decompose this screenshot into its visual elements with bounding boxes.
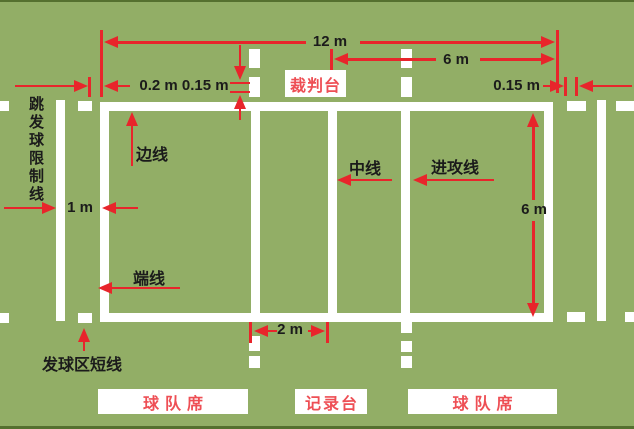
team-bench-right-box: 球队席 [408, 389, 557, 414]
end-line-label: 端线 [133, 265, 165, 289]
side-line-label: 边线 [136, 141, 168, 165]
arrowhead-left [98, 282, 112, 294]
dash-mark [401, 341, 412, 352]
attack-line-right [401, 102, 410, 322]
dim-line [239, 45, 241, 67]
team-bench-left-label: 球队席 [143, 390, 209, 414]
dim-tick [575, 77, 578, 96]
dash-mark [249, 49, 260, 68]
dim-line [480, 58, 542, 61]
arrowhead-right [311, 325, 325, 337]
label-leader-line [111, 287, 180, 289]
dash-mark [249, 77, 260, 97]
attack-line-left [251, 102, 260, 322]
dim-tick [88, 77, 91, 97]
dim-12m-label: 12 m [300, 33, 360, 50]
dim-1m-label: 1 m [62, 199, 98, 216]
side-line-bottom [100, 313, 553, 322]
arrowhead-right [550, 80, 564, 92]
label-leader-line [350, 179, 392, 181]
dim-line [532, 126, 535, 200]
attack-line-label: 进攻线 [431, 154, 479, 178]
dim-tick [249, 322, 252, 343]
dash-mark [625, 312, 634, 322]
arrowhead-right [74, 80, 88, 92]
dim-tick [100, 30, 103, 97]
serve-zone-short-line-label: 发球区短线 [42, 351, 122, 375]
dim-2m-label: 2 m [272, 321, 308, 338]
referee-stand-box: 裁判台 [285, 70, 346, 97]
dash-mark [401, 77, 412, 97]
jump-serve-restriction-line-label: 跳发球限制线 [24, 96, 46, 228]
dim-gap-labels: 0.2 m 0.15 m [131, 77, 237, 94]
dim-tick [330, 49, 333, 72]
dash-mark [567, 312, 585, 322]
center-line [328, 102, 337, 322]
dash-mark [78, 313, 92, 323]
arrowhead-left [102, 202, 116, 214]
dim-6m-width-label: 6 m [514, 201, 554, 218]
dash-mark [0, 101, 9, 111]
team-bench-left-box: 球队席 [98, 389, 248, 414]
dash-mark [567, 101, 586, 111]
dim-line [592, 85, 632, 87]
arrowhead-right [541, 36, 555, 48]
arrowhead-left [254, 325, 268, 337]
arrowhead-right [541, 53, 555, 65]
dim-line [116, 207, 138, 209]
dash-mark [249, 356, 260, 368]
center-line-label: 中线 [349, 155, 381, 179]
dim-015m-right-label: 0.15 m [470, 77, 540, 94]
dash-mark [401, 322, 412, 333]
dim-tick [564, 77, 567, 96]
dim-line [239, 108, 241, 120]
arrowhead-left [579, 80, 593, 92]
dim-line [117, 85, 130, 87]
dash-mark [78, 101, 92, 111]
arrowhead-left [104, 80, 118, 92]
dim-line [360, 41, 542, 44]
dash-mark [616, 101, 634, 111]
arrowhead-down [234, 66, 246, 80]
dim-015m-label: 0.15 m [182, 77, 229, 94]
arrowhead-left [413, 174, 427, 186]
dash-mark [0, 313, 9, 323]
volleyball-court-diagram: 12 m 6 m 0.2 m 0.15 m 0.15 m 1 m 2 m 6 m [0, 0, 634, 429]
side-line-top [100, 102, 553, 111]
dim-tick-horizontal [230, 82, 250, 84]
dim-02m-label: 0.2 m [139, 77, 177, 94]
referee-stand-label: 裁判台 [290, 72, 341, 96]
label-leader-line [83, 341, 85, 351]
scorer-table-box: 记录台 [295, 389, 367, 414]
arrowhead-down [527, 303, 539, 317]
dim-tick-horizontal [230, 91, 250, 93]
dim-line [116, 41, 306, 44]
arrowhead-up [78, 328, 90, 342]
dim-tick [326, 322, 329, 343]
jump-serve-restriction-line-right [597, 100, 606, 321]
arrowhead-up [126, 112, 138, 126]
arrowhead-up [234, 95, 246, 109]
label-leader-line [131, 125, 133, 166]
dim-6m-top-label: 6 m [434, 51, 478, 68]
label-leader-line [426, 179, 494, 181]
arrowhead-up [527, 113, 539, 127]
dim-line [346, 58, 436, 61]
team-bench-right-label: 球队席 [452, 390, 518, 414]
arrowhead-left [337, 174, 351, 186]
dim-line [532, 221, 535, 303]
dash-mark [401, 356, 412, 368]
scorer-table-label: 记录台 [305, 390, 359, 414]
dim-line [15, 85, 77, 87]
top-border-strip [0, 0, 634, 2]
